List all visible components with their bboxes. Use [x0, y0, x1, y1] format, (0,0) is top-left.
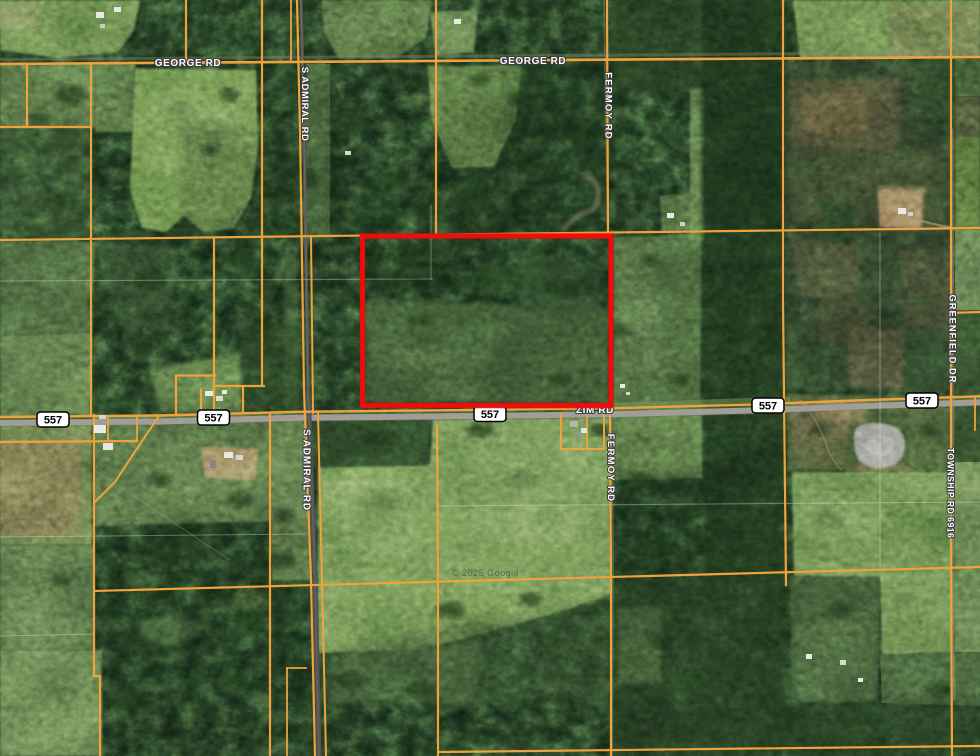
svg-text:S ADMIRAL RD: S ADMIRAL RD: [301, 429, 312, 511]
svg-text:557: 557: [759, 401, 777, 413]
svg-text:557: 557: [913, 396, 931, 408]
svg-text:FERMOY RD: FERMOY RD: [605, 434, 616, 503]
svg-text:© 2025 Google: © 2025 Google: [452, 568, 519, 578]
svg-text:GEORGE RD: GEORGE RD: [155, 58, 222, 69]
svg-text:557: 557: [44, 415, 62, 427]
svg-text:FERMOY RD: FERMOY RD: [603, 72, 614, 140]
svg-text:S ADMIRAL RD: S ADMIRAL RD: [299, 67, 310, 142]
svg-text:557: 557: [481, 409, 499, 421]
svg-text:557: 557: [204, 413, 222, 425]
svg-text:TOWNSHIP RD 6916: TOWNSHIP RD 6916: [946, 448, 956, 539]
svg-text:GREENFIELD DR: GREENFIELD DR: [948, 295, 958, 384]
svg-text:GEORGE RD: GEORGE RD: [500, 56, 567, 67]
